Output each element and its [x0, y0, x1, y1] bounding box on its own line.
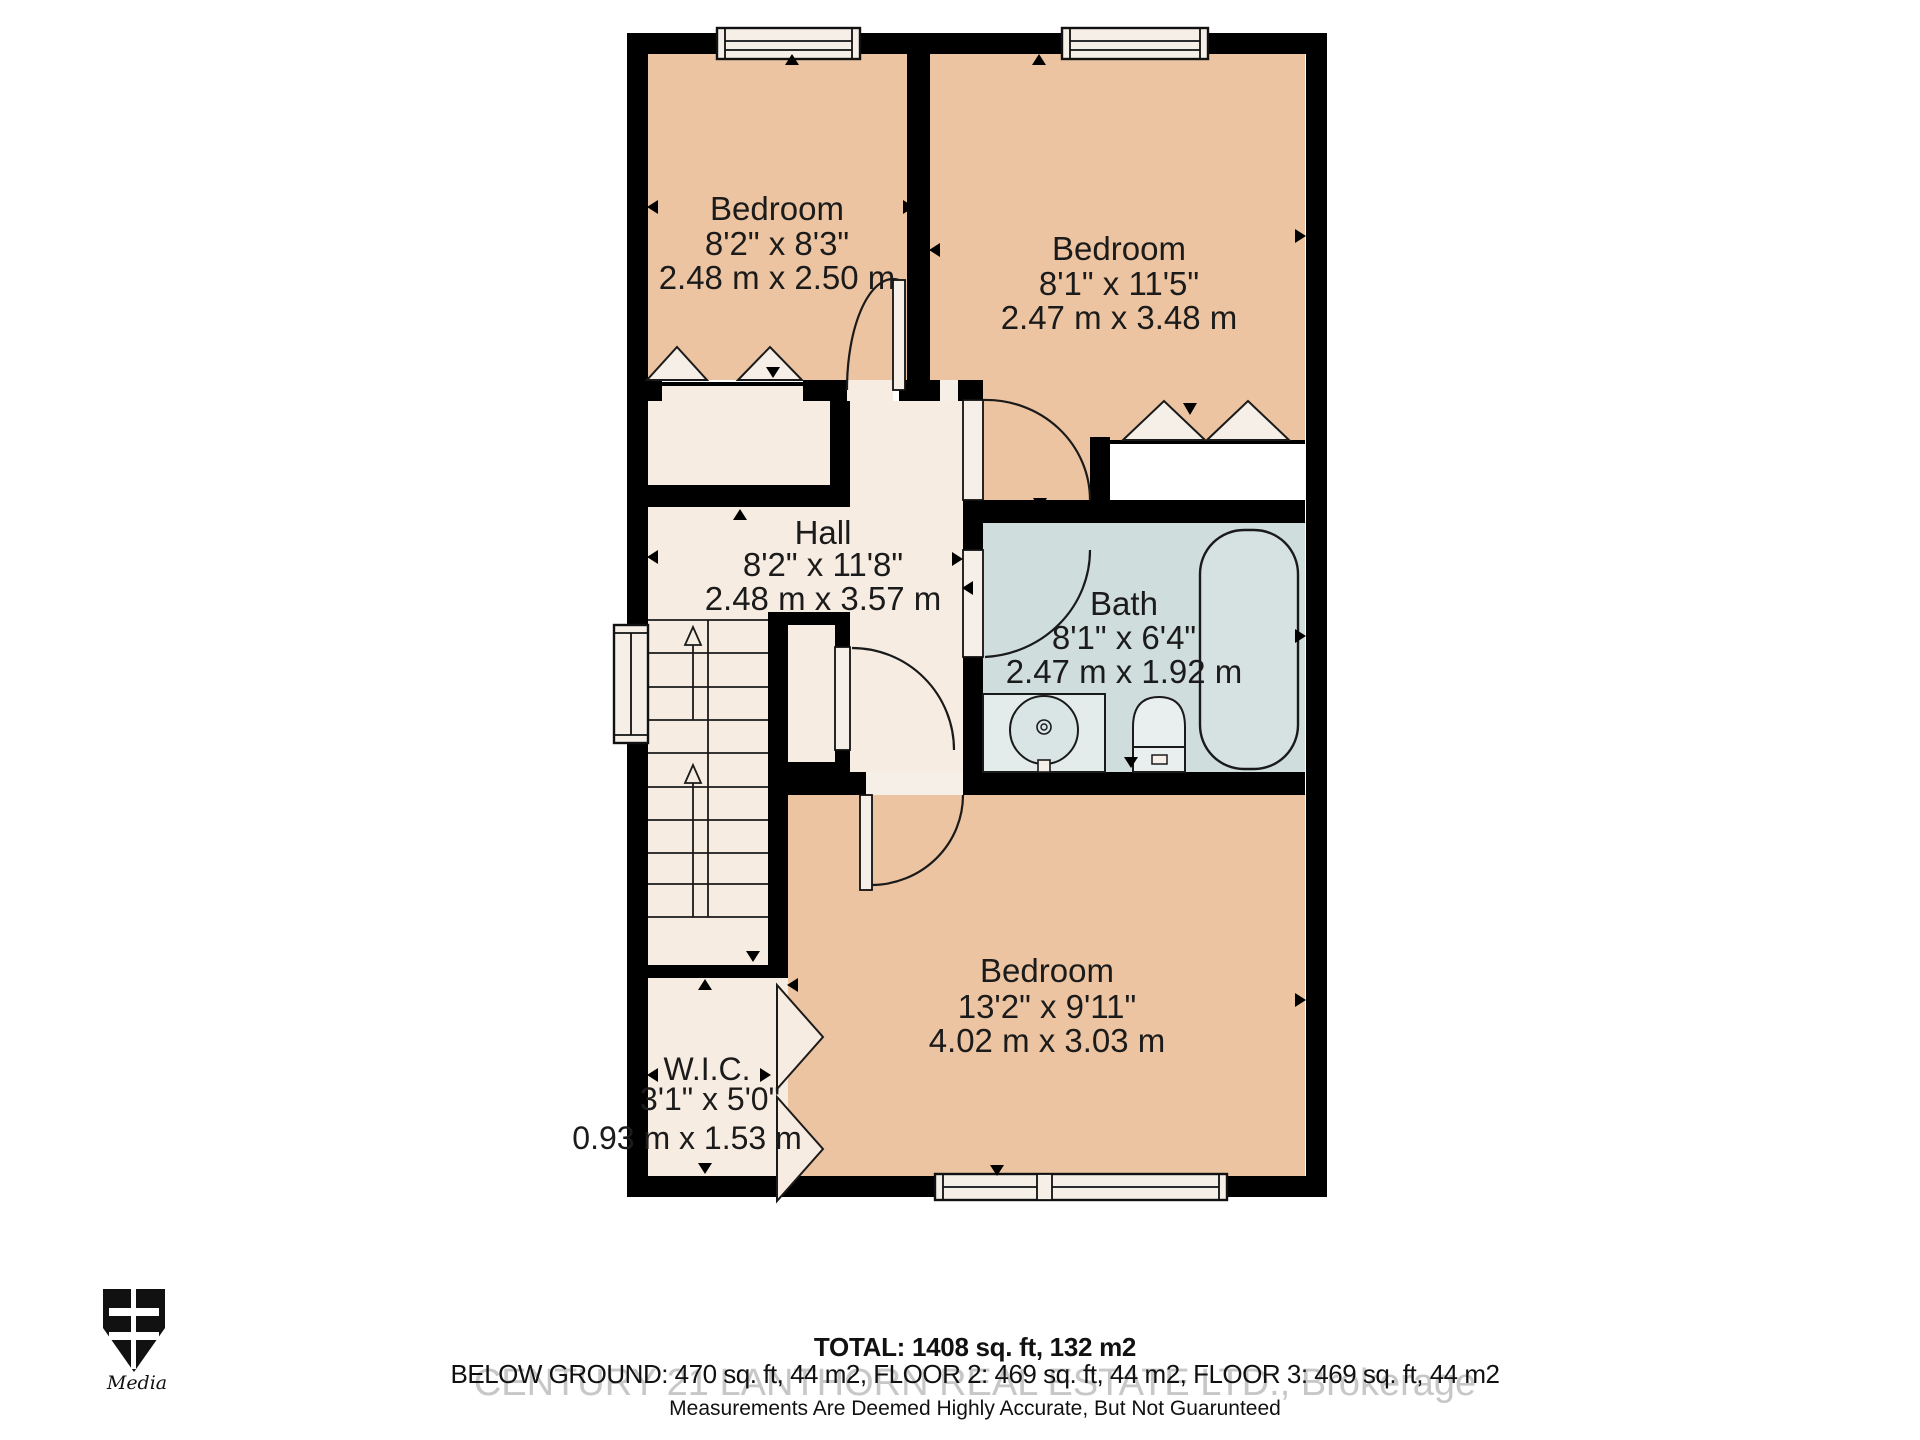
wall-bedroom1-bottom [803, 380, 847, 401]
hall-corridor-floor [850, 401, 963, 507]
bedroom2-label: Bedroom [1052, 230, 1186, 267]
bedroom3-dim-metric: 4.02 m x 3.03 m [929, 1022, 1166, 1059]
wall-wic-top [627, 965, 788, 978]
bedroom3-dim-imperial: 13'2" x 9'11" [958, 988, 1137, 1025]
wall-left [627, 33, 648, 1197]
bath-label: Bath [1090, 585, 1158, 622]
bedroom1-door-leaf [893, 280, 905, 390]
hall-dim-metric: 2.48 m x 3.57 m [705, 580, 942, 617]
bedroom3-window [935, 1174, 1227, 1200]
bedroom1-dim-imperial: 8'2" x 8'3" [705, 225, 849, 262]
bathtub-icon [1200, 530, 1298, 769]
floor-plan-page: Bedroom 8'2" x 8'3" 2.48 m x 2.50 m Bedr… [0, 0, 1920, 1440]
bedroom2-dim-metric: 2.47 m x 3.48 m [1001, 299, 1238, 336]
toilet-flush-icon [1152, 755, 1167, 764]
wic-dim-imperial: 3'1" x 5'0" [640, 1081, 780, 1117]
floor-areas-text: BELOW GROUND: 470 sq. ft, 44 m2, FLOOR 2… [451, 1359, 1500, 1390]
wall-bedroom2-bottom [958, 380, 983, 401]
sink-faucet-icon [1038, 760, 1050, 772]
bedroom1-closet-floor [648, 386, 830, 485]
wall-bedroom1-bottom [648, 380, 662, 401]
hall-dim-imperial: 8'2" x 11'8" [743, 546, 903, 583]
be-shield-icon [103, 1289, 165, 1372]
be-media-logo: Media [95, 1286, 185, 1396]
bedroom2-doorway [940, 380, 958, 401]
bedroom2-door-leaf [963, 400, 983, 500]
bath-dim-imperial: 8'1" x 6'4" [1052, 619, 1196, 656]
wall-right [1306, 33, 1327, 1197]
bedroom1-window [717, 28, 860, 59]
wall-bedroom1-bedroom2 [907, 54, 930, 401]
bedroom3-label: Bedroom [980, 952, 1114, 989]
bedroom3-door-leaf [860, 795, 872, 890]
wall-bedroom3-top [783, 772, 866, 795]
closet1-sill-line [662, 382, 803, 386]
wall-bath-left [963, 523, 983, 550]
bedroom3-doorway [866, 772, 963, 795]
bedroom2-dim-imperial: 8'1" x 11'5" [1039, 265, 1199, 302]
bath-dim-metric: 2.47 m x 1.92 m [1006, 653, 1243, 690]
measurement-disclaimer-text: Measurements Are Deemed Highly Accurate,… [669, 1397, 1281, 1421]
logo-media-text: Media [106, 1372, 167, 1394]
bedroom1-doorway [847, 380, 893, 401]
wall-closet1-bottom [648, 485, 850, 507]
bedroom2-window [1062, 28, 1208, 59]
wall-bedroom3-top [963, 772, 1305, 795]
hall-closet-door-leaf [835, 647, 850, 750]
bath-door-leaf [963, 550, 983, 657]
wall-bath-left [963, 657, 983, 772]
wall-hallcloset-left [768, 612, 788, 775]
floor-plan: Bedroom 8'2" x 8'3" 2.48 m x 2.50 m Bedr… [627, 33, 1327, 1197]
wic-dim-metric: 0.93 m x 1.53 m [572, 1120, 801, 1156]
bedroom1-label: Bedroom [710, 190, 844, 227]
bedroom1-dim-metric: 2.48 m x 2.50 m [659, 259, 896, 296]
bedroom2-door-nook [983, 380, 1090, 500]
wall-stairwell-right [768, 775, 788, 965]
wall-closet2-left [1090, 437, 1110, 500]
hall-closet-interior [788, 625, 835, 762]
stairwell-window [614, 625, 648, 743]
wall-hallcloset-right [835, 612, 850, 648]
